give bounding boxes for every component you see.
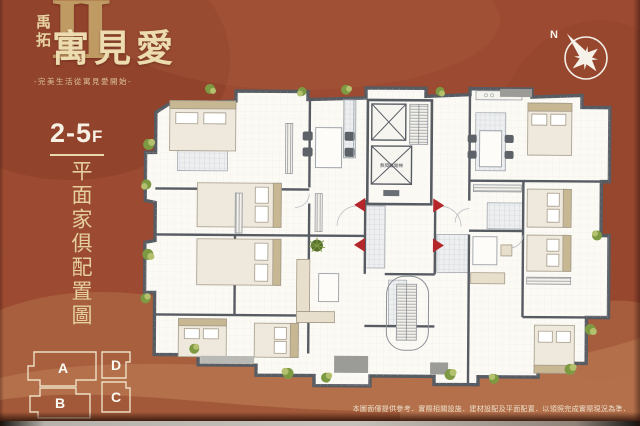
unit-b-label: B bbox=[55, 395, 65, 411]
unit-a-label: A bbox=[58, 360, 68, 376]
floor-range-badge: 2-5F bbox=[50, 120, 104, 156]
photo-bottom-shadow bbox=[0, 412, 640, 421]
compass-rose-icon: N bbox=[544, 16, 624, 96]
photo-left-vignette bbox=[0, 0, 4, 426]
compass-north-label: N bbox=[550, 29, 558, 41]
floor-range: 2-5 bbox=[50, 118, 92, 148]
floorplan-poster: 無障礙電梯 bbox=[0, 0, 640, 426]
page-title: 平面家俱配置圖 bbox=[70, 160, 91, 330]
unit-c-label: C bbox=[111, 389, 121, 405]
photo-right-vignette bbox=[633, 0, 640, 426]
project-name: 寓見愛 bbox=[52, 18, 178, 72]
floor-plan-drawing: 無障礙電梯 bbox=[138, 82, 616, 391]
unit-key-plan: A B D C bbox=[16, 342, 136, 422]
floor-suffix: F bbox=[92, 127, 102, 146]
unit-d-label: D bbox=[111, 357, 121, 373]
brand-tagline: -完美生活從寓見愛開始- bbox=[34, 76, 174, 87]
developer-name: 禹拓 bbox=[34, 14, 49, 50]
photo-bottom-edge bbox=[0, 421, 640, 426]
brand-block: II 禹拓 寓見愛 -完美生活從寓見愛開始- bbox=[28, 2, 178, 102]
